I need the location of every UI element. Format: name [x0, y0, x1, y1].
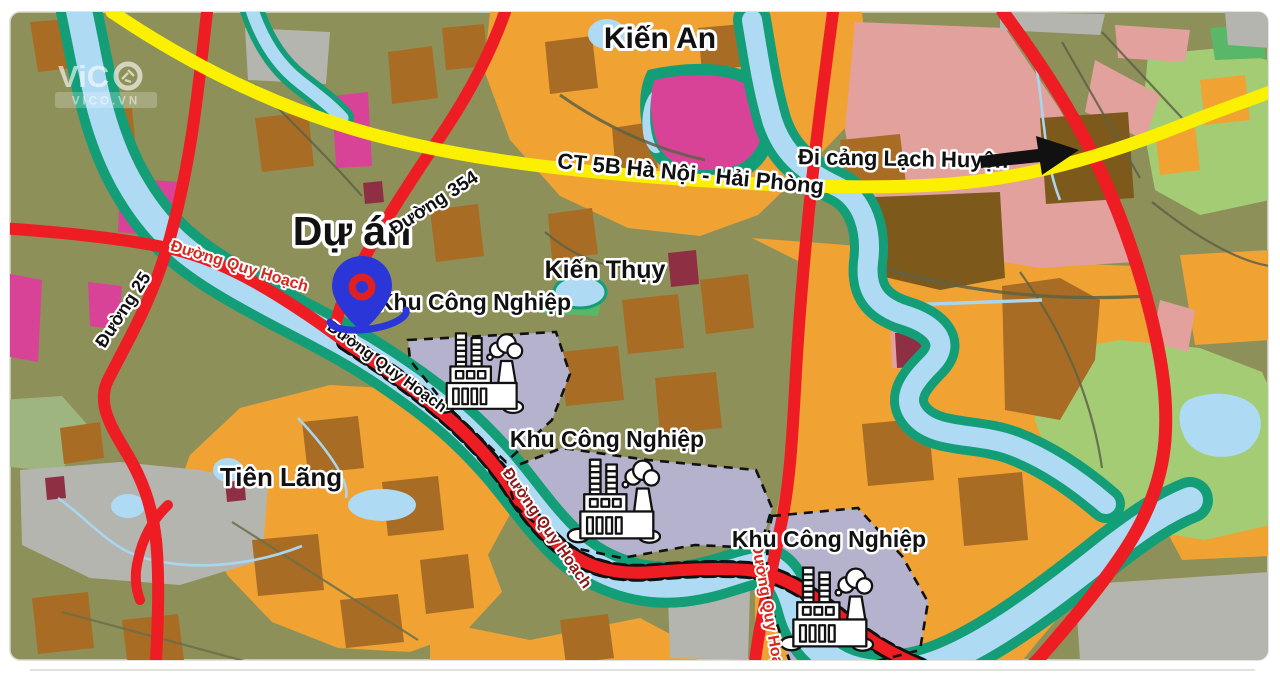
- label-kien-thuy: Kiến Thụy: [545, 256, 666, 284]
- label-industrial-zone-2: Khu Công Nghiệp: [510, 426, 704, 452]
- label-tien-lang: Tiên Lãng: [220, 462, 342, 492]
- watermark-logo-text: ViC: [58, 59, 109, 94]
- pin-inner-dot: [356, 281, 368, 293]
- bottom-divider: [30, 669, 1255, 671]
- label-industrial-zone-3: Khu Công Nghiệp: [732, 526, 926, 552]
- planning-map: ViC VICO.VN Kiến An CT 5B Hà Nội - Hải P…: [0, 0, 1280, 676]
- watermark-domain: VICO.VN: [72, 96, 140, 108]
- planning-map-page: ViC VICO.VN Kiến An CT 5B Hà Nội - Hải P…: [0, 0, 1280, 676]
- label-port-direction: Đi cảng Lạch Huyện: [798, 144, 1009, 173]
- label-kien-an: Kiến An: [604, 22, 716, 55]
